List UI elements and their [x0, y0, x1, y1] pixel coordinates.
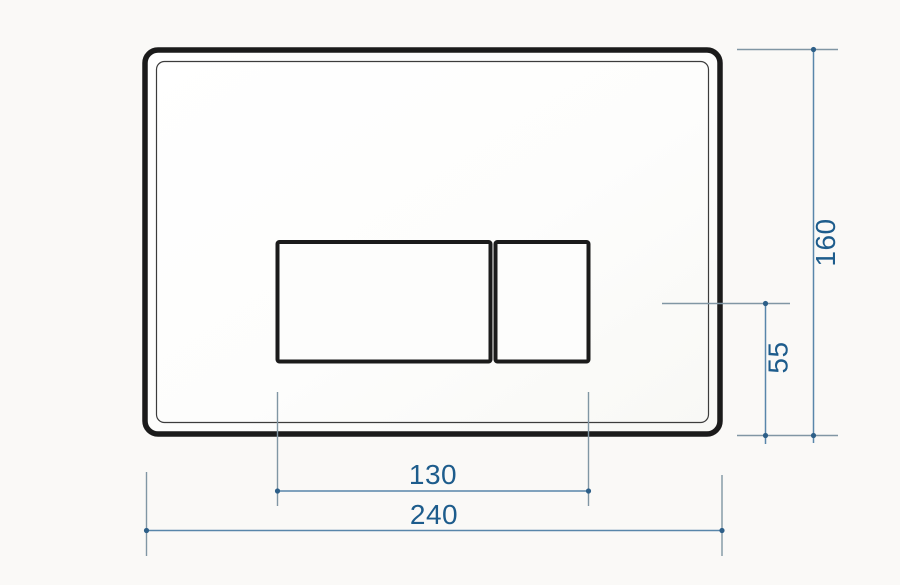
flush-plate-technical-drawing: 160 55 130 240 — [0, 0, 900, 585]
dim-marker — [763, 301, 768, 306]
flush-plate — [145, 50, 720, 434]
small-flush-button — [496, 242, 589, 362]
dim-marker — [811, 433, 816, 438]
large-flush-button — [278, 242, 491, 362]
dimension-label-55: 55 — [762, 341, 793, 373]
dim-marker — [586, 488, 591, 493]
drawing-canvas: 160 55 130 240 — [0, 0, 900, 585]
dimension-label-130: 130 — [409, 459, 457, 490]
dimension-label-240: 240 — [410, 499, 458, 530]
dimension-label-160: 160 — [810, 218, 841, 266]
dim-marker — [719, 528, 724, 533]
dim-marker — [275, 488, 280, 493]
dim-marker — [763, 433, 768, 438]
dim-marker — [811, 47, 816, 52]
dim-marker — [144, 528, 149, 533]
